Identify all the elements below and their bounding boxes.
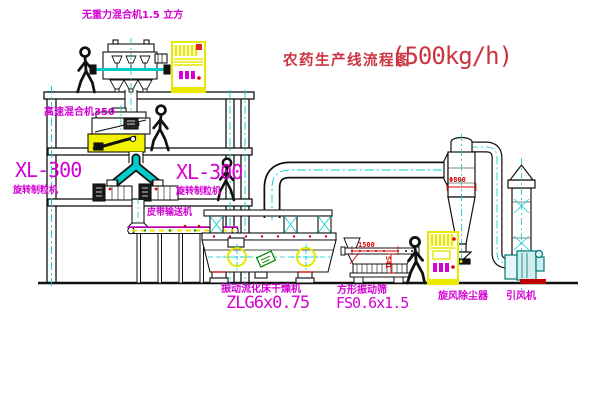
- label-granulator1-name: 旋转制粒机: [13, 187, 58, 196]
- indicator-red: [196, 44, 202, 50]
- label-granulator2-name: 旋转制粒机: [176, 188, 221, 197]
- worker-roof: [78, 48, 95, 92]
- label-belt-conveyor: 皮带输送机: [147, 209, 192, 218]
- label-granulator2-model: XL-300: [176, 162, 242, 182]
- dimension-sieve-width: 1500: [358, 242, 375, 249]
- mixer-shaft: [94, 68, 166, 71]
- page-title-capacity: (500kg/h): [391, 44, 512, 68]
- control-cabinet-bottom: [428, 232, 458, 284]
- label-mixer-top: 无重力混合机1.5 立方: [82, 11, 183, 21]
- label-dryer-model: ZLG6x0.75: [226, 295, 309, 312]
- fluid-bed-dryer: [202, 210, 336, 283]
- dryer-feet: [210, 272, 314, 283]
- label-sieve-model: FS0.6x1.5: [336, 296, 408, 311]
- dryer-inlet: [228, 238, 244, 247]
- cyclone-outlet-pipe: [470, 147, 514, 263]
- rotary-granulators: [93, 180, 178, 201]
- panel-text-marks: [179, 71, 195, 79]
- indicator-red: [452, 237, 456, 241]
- worker-floor2: [152, 106, 169, 150]
- induced-draft-fan: [505, 251, 546, 285]
- dimension-sieve-height: 541: [384, 256, 391, 269]
- flow-diagram-canvas: 无重力混合机1.5 立方 农药生产线流程图 (500kg/h) 高速混合机350…: [0, 0, 600, 403]
- granulator-1: [93, 180, 132, 201]
- label-fan: 引风机: [506, 292, 536, 302]
- label-mixer-floor2: 高速混合机350: [44, 108, 115, 118]
- dimension-cyclone-dia: Φ800: [449, 177, 466, 184]
- label-cyclone: 旋风除尘器: [438, 292, 488, 302]
- label-granulator1-model: XL-300: [15, 160, 81, 180]
- control-cabinet-top: [172, 42, 205, 92]
- worker-ground: [407, 237, 424, 283]
- gravity-free-mixer: [90, 38, 170, 116]
- granulator-2: [139, 180, 178, 201]
- panel-text-marks: [433, 263, 449, 272]
- fan-base: [520, 279, 546, 284]
